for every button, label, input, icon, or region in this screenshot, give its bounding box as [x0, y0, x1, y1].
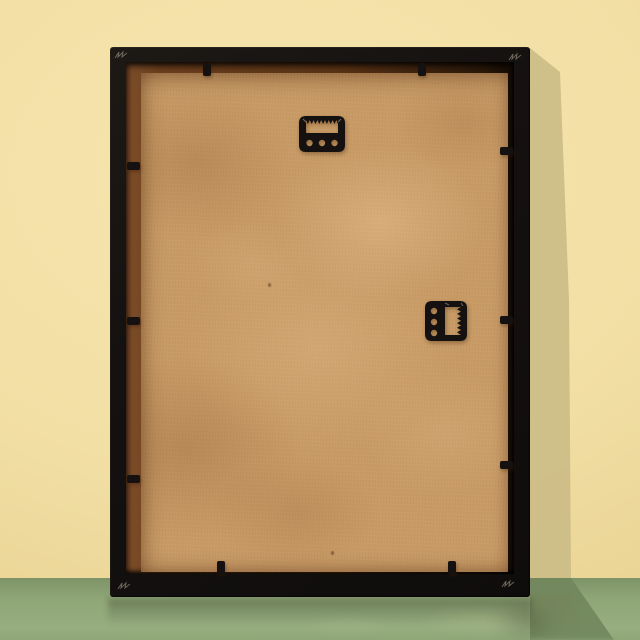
- floor-reflection-wisp: [414, 606, 548, 634]
- picture-frame-back: [110, 47, 530, 597]
- scratch-glint-bottom-right: [501, 578, 517, 590]
- backing-speck: [268, 283, 271, 287]
- sawtooth-hanger-right: [425, 301, 467, 341]
- scratch-glint-top-left: [114, 49, 130, 61]
- sawtooth-hanger-top: [299, 116, 345, 152]
- scratch-glint-bottom-left: [117, 580, 133, 592]
- floor-reflection-shadow-band: [531, 596, 573, 630]
- floor-reflection-wisp: [296, 614, 400, 636]
- photo-scene: [0, 0, 640, 640]
- backing-speck: [331, 551, 334, 555]
